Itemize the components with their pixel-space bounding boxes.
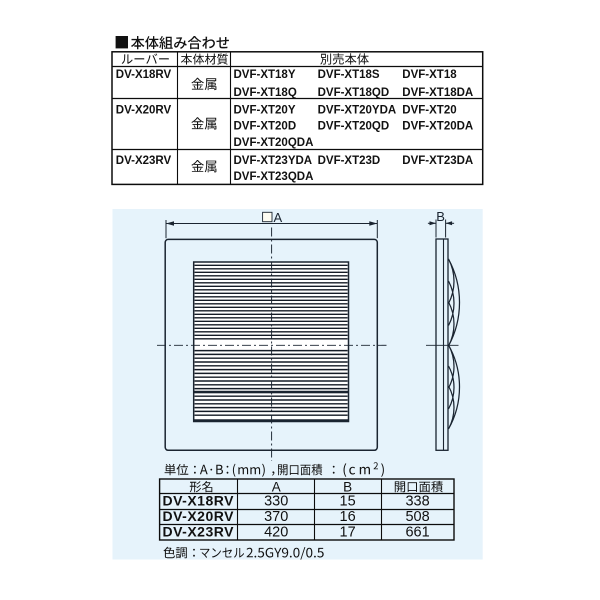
svg-text:DVF-XT23DA: DVF-XT23DA (402, 155, 473, 167)
svg-text:DVF-XT20YDA: DVF-XT20YDA (318, 104, 397, 116)
svg-text:A: A (274, 210, 283, 225)
svg-text:420: 420 (264, 525, 288, 541)
svg-text:A: A (272, 479, 281, 494)
svg-text:17: 17 (340, 525, 356, 541)
svg-text:DVF-XT18Q: DVF-XT18Q (234, 87, 297, 99)
svg-text:DVF-XT20QD: DVF-XT20QD (318, 121, 390, 133)
svg-text:16: 16 (340, 509, 356, 525)
svg-text:DVF-XT23D: DVF-XT23D (318, 155, 381, 167)
svg-text:DV-X18RV: DV-X18RV (163, 493, 235, 509)
svg-text:330: 330 (264, 494, 288, 510)
svg-text:DVF-XT18S: DVF-XT18S (318, 69, 380, 81)
svg-text:DVF-XT20D: DVF-XT20D (234, 121, 297, 133)
svg-text:DVF-XT20: DVF-XT20 (402, 104, 456, 116)
svg-text:B: B (343, 479, 352, 494)
svg-text:338: 338 (405, 494, 429, 510)
svg-text:661: 661 (405, 525, 429, 541)
svg-text:DVF-XT18: DVF-XT18 (402, 69, 457, 81)
svg-text:B: B (436, 209, 445, 224)
svg-text:DVF-XT20DA: DVF-XT20DA (402, 121, 473, 133)
svg-text:DV-X18RV: DV-X18RV (116, 69, 172, 81)
svg-text:DV-X23RV: DV-X23RV (163, 524, 235, 540)
svg-text:15: 15 (340, 494, 356, 510)
svg-text:DV-X20RV: DV-X20RV (116, 104, 172, 116)
svg-text:DVF-XT18QD: DVF-XT18QD (318, 87, 390, 99)
svg-text:DV-X23RV: DV-X23RV (116, 155, 172, 167)
svg-text:DVF-XT20Y: DVF-XT20Y (234, 104, 296, 116)
svg-text:DVF-XT18Y: DVF-XT18Y (234, 69, 296, 81)
svg-text:DVF-XT18DA: DVF-XT18DA (402, 87, 473, 99)
svg-text:DVF-XT23QDA: DVF-XT23QDA (234, 171, 314, 183)
svg-text:DV-X20RV: DV-X20RV (163, 508, 235, 524)
svg-text:DVF-XT23YDA: DVF-XT23YDA (234, 155, 313, 167)
svg-text:370: 370 (264, 509, 288, 525)
svg-text:DVF-XT20QDA: DVF-XT20QDA (234, 137, 314, 149)
svg-text:508: 508 (405, 509, 429, 525)
